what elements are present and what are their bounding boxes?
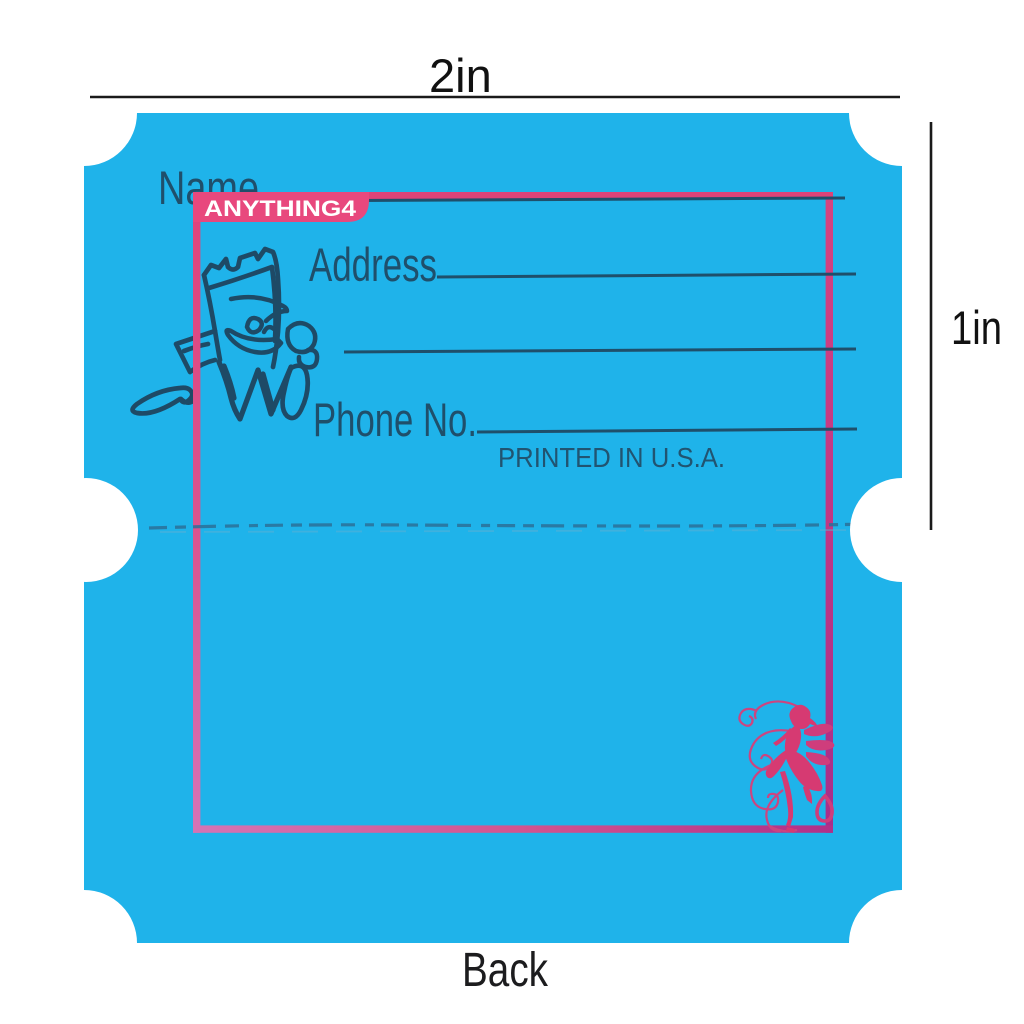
svg-text:Address: Address <box>309 238 437 291</box>
svg-text:Back: Back <box>462 944 549 997</box>
svg-text:ANYTHING4: ANYTHING4 <box>204 196 357 221</box>
svg-text:2in: 2in <box>429 49 492 102</box>
svg-text:1in: 1in <box>951 301 1002 354</box>
svg-text:PRINTED IN U.S.A.: PRINTED IN U.S.A. <box>498 442 725 473</box>
svg-text:Phone No.: Phone No. <box>313 393 477 446</box>
